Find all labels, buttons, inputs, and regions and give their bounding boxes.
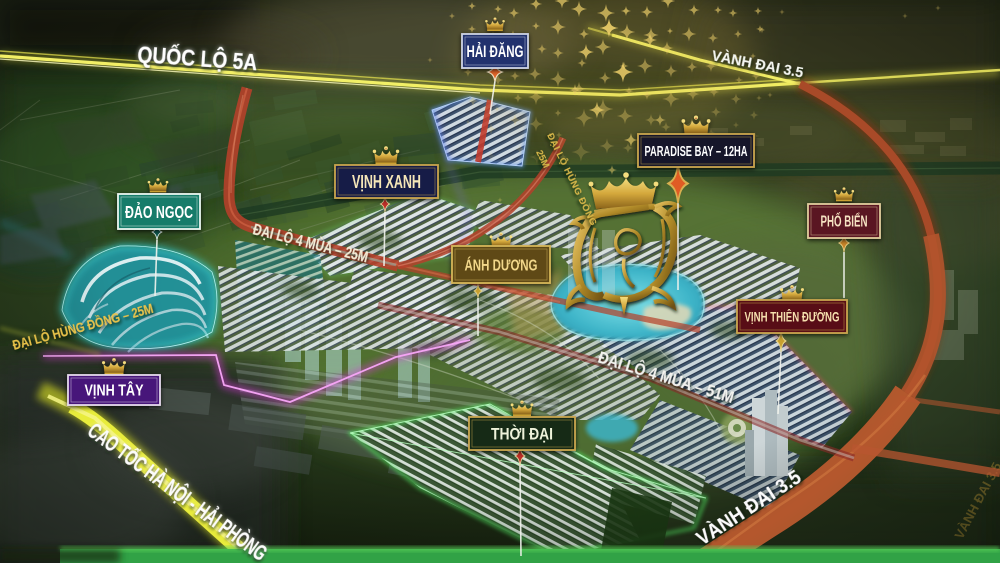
svg-text:VỊNH TÂY: VỊNH TÂY [85, 382, 145, 400]
svg-text:VỊNH XANH: VỊNH XANH [352, 172, 421, 192]
svg-text:ĐẢO NGỌC: ĐẢO NGỌC [125, 201, 193, 222]
svg-text:PHỐ BIỂN: PHỐ BIỂN [821, 213, 868, 231]
svg-text:HẢI ĐĂNG: HẢI ĐĂNG [467, 42, 524, 61]
svg-text:VỊNH THIÊN ĐƯỜNG: VỊNH THIÊN ĐƯỜNG [745, 309, 840, 324]
svg-text:ÁNH DƯƠNG: ÁNH DƯƠNG [465, 255, 538, 274]
svg-text:PARADISE BAY – 12HA: PARADISE BAY – 12HA [645, 143, 748, 160]
svg-text:THỜI ĐẠI: THỜI ĐẠI [491, 425, 553, 444]
